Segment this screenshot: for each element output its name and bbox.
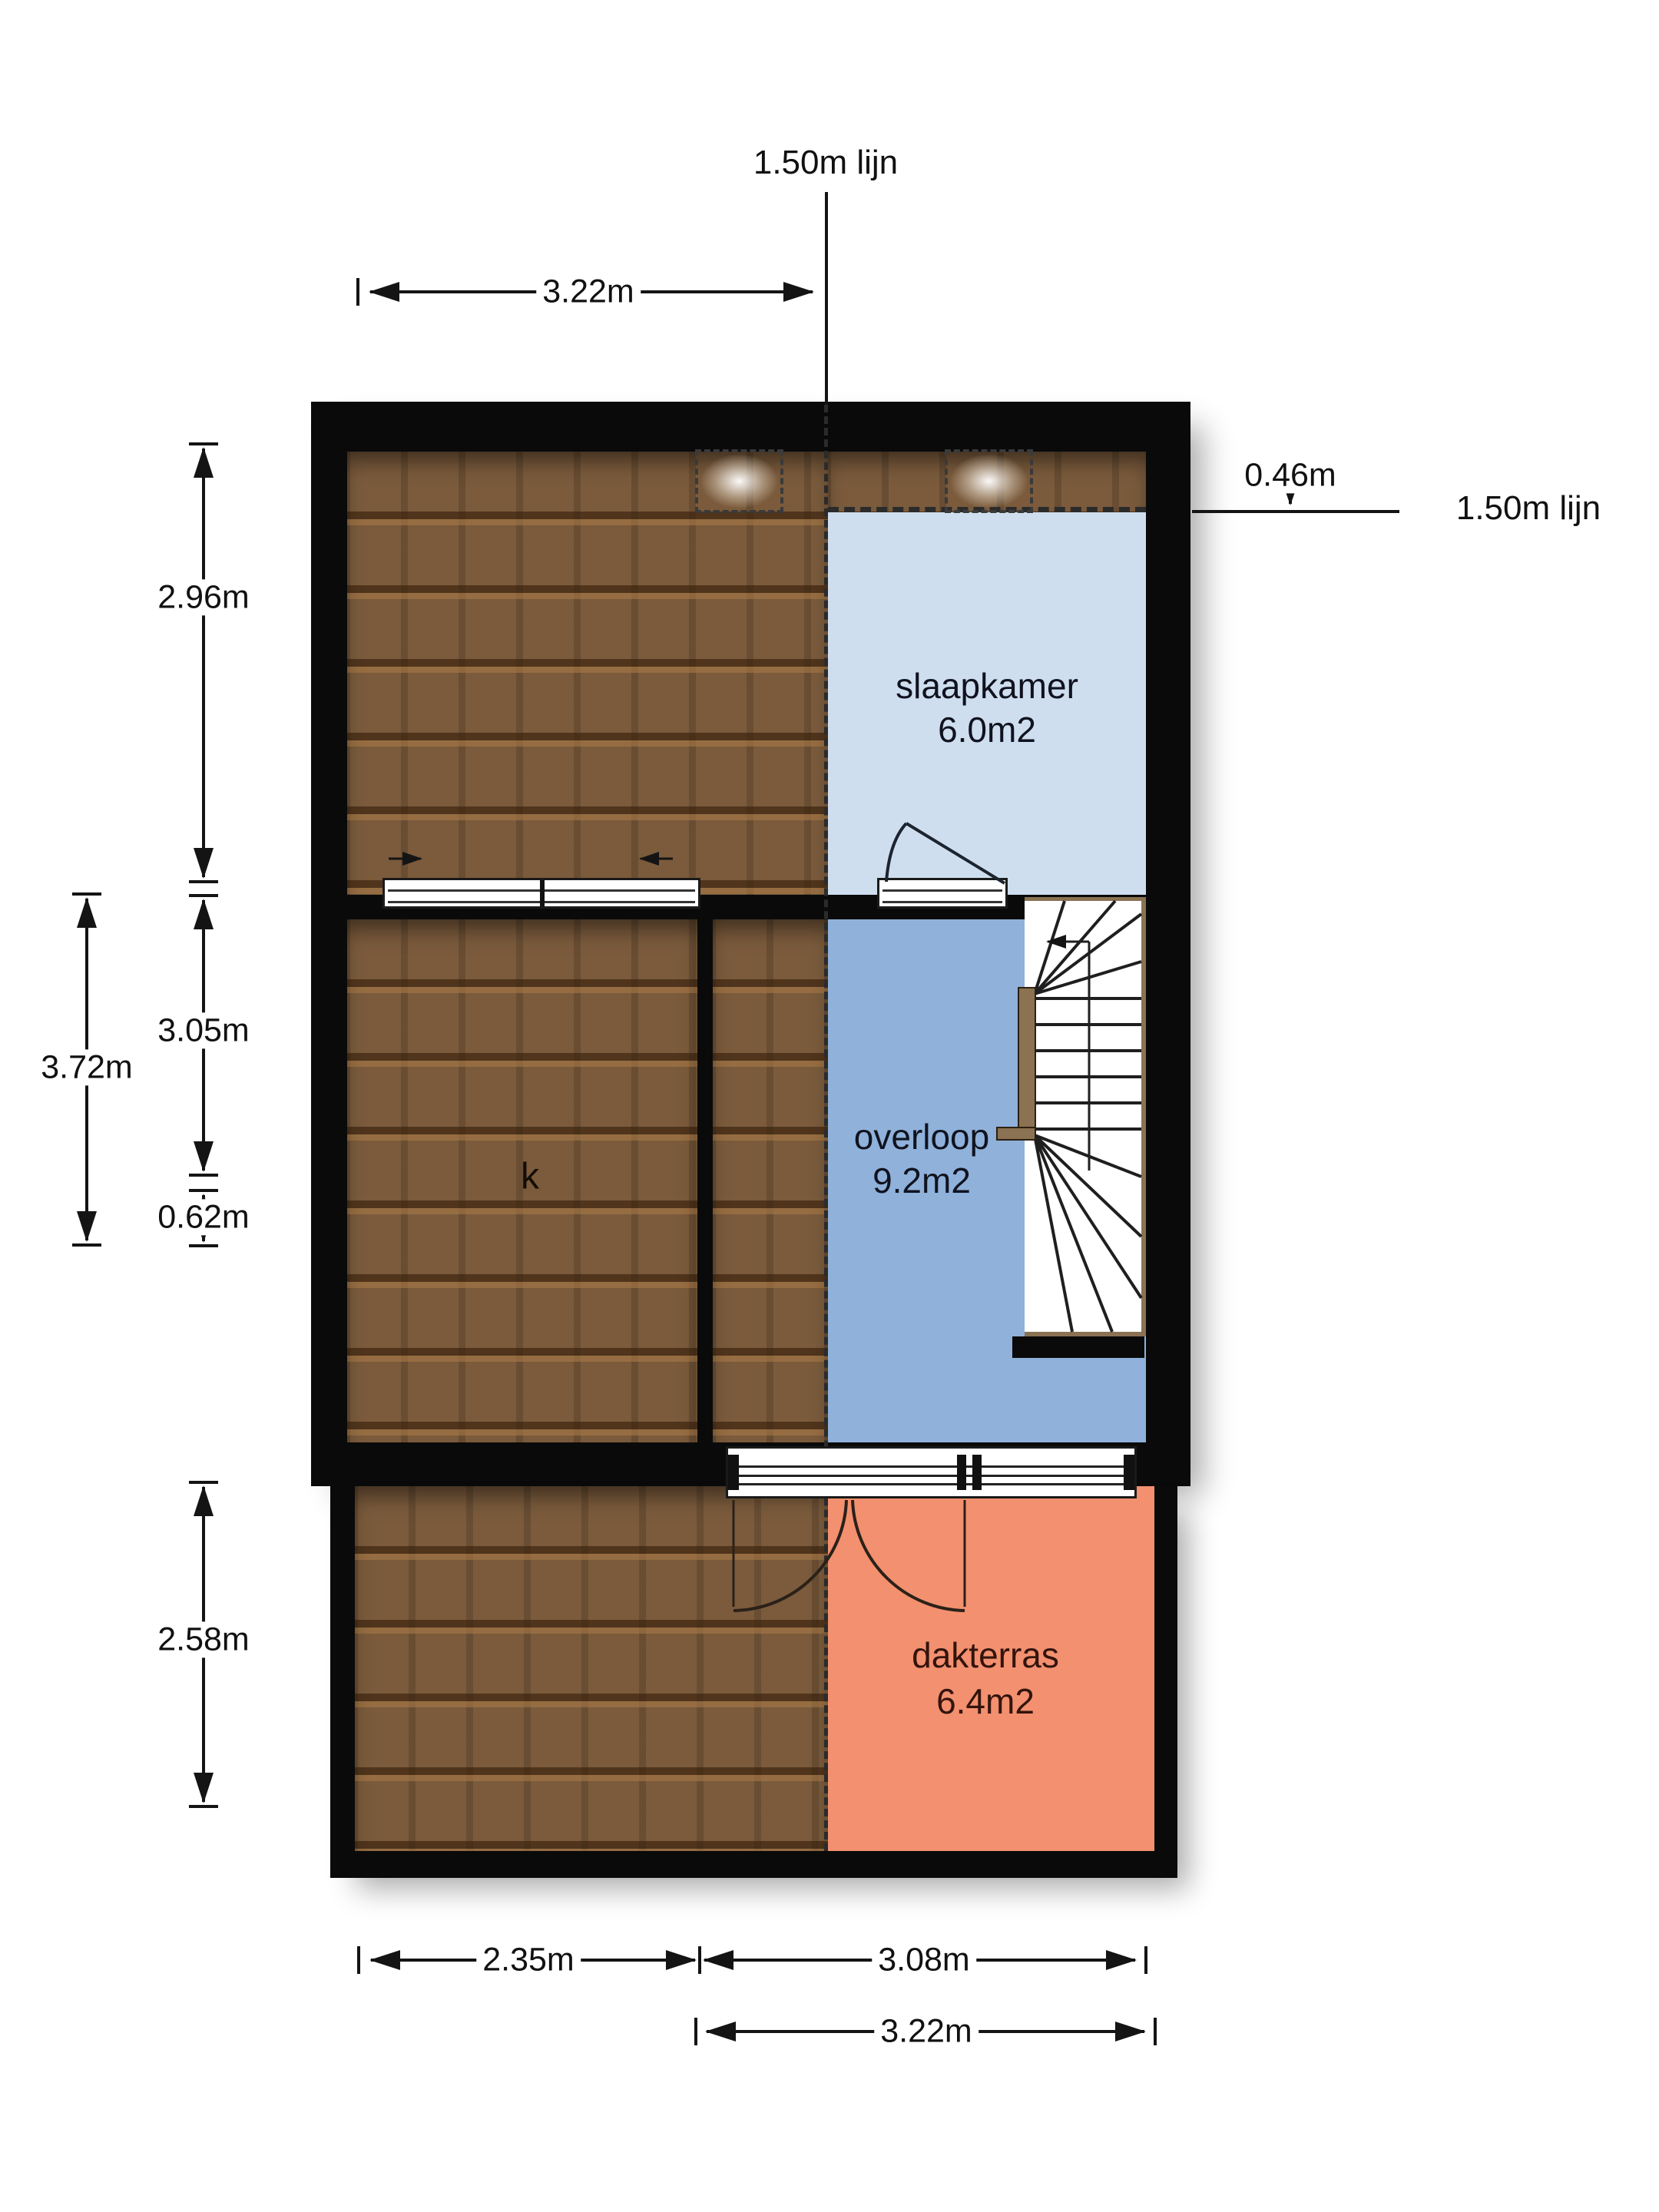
dim-label-right-offset: 0.46m xyxy=(1238,457,1343,493)
room-area-overloop: 9.2m2 xyxy=(873,1160,971,1201)
slaapkamer-door-arc xyxy=(886,823,906,882)
dim-label-top-width: 3.22m xyxy=(536,273,641,310)
dim-label-bottom-total: 3.22m xyxy=(874,2013,979,2049)
dim-label-left-bottom: 2.58m xyxy=(151,1621,256,1657)
staircase xyxy=(997,901,1141,1332)
room-label-overloop: overloop xyxy=(854,1116,989,1157)
stair-balustrade xyxy=(1018,988,1035,1138)
dimension-arrows xyxy=(72,278,1309,2045)
room-label-slaapkamer: slaapkamer xyxy=(896,665,1078,707)
floorplan-canvas: 1.50m lijn 1.50m lijn 3.22m 3.72m 2.96m … xyxy=(0,0,1659,2212)
stair-balustrade-post xyxy=(997,1128,1035,1140)
dim-label-left-upper: 2.96m xyxy=(151,579,256,615)
dim-label-bottom-right: 3.08m xyxy=(872,1942,976,1978)
room-label-k: k xyxy=(521,1156,539,1198)
dim-label-left-small: 0.62m xyxy=(151,1199,256,1235)
label-1-50m-line-top: 1.50m lijn xyxy=(753,144,898,182)
dim-label-bottom-left: 2.35m xyxy=(476,1942,581,1978)
label-1-50m-line-right: 1.50m lijn xyxy=(1456,489,1601,528)
stair-winder-tread xyxy=(1035,901,1065,994)
linework-overlay xyxy=(0,0,1659,2212)
room-label-dakterras: dakterras xyxy=(912,1634,1059,1676)
dim-label-left-middle: 3.05m xyxy=(151,1012,256,1048)
stair-winder-tread xyxy=(1035,901,1115,994)
dakterras-door-arc-left xyxy=(733,1500,846,1611)
slaapkamer-door-leaf xyxy=(906,823,1005,883)
dakterras-door-arc-right xyxy=(853,1500,965,1611)
room-area-slaapkamer: 6.0m2 xyxy=(938,709,1036,750)
dim-label-left-total: 3.72m xyxy=(35,1049,139,1085)
room-area-dakterras: 6.4m2 xyxy=(936,1681,1035,1722)
door-arcs xyxy=(733,823,1005,1611)
